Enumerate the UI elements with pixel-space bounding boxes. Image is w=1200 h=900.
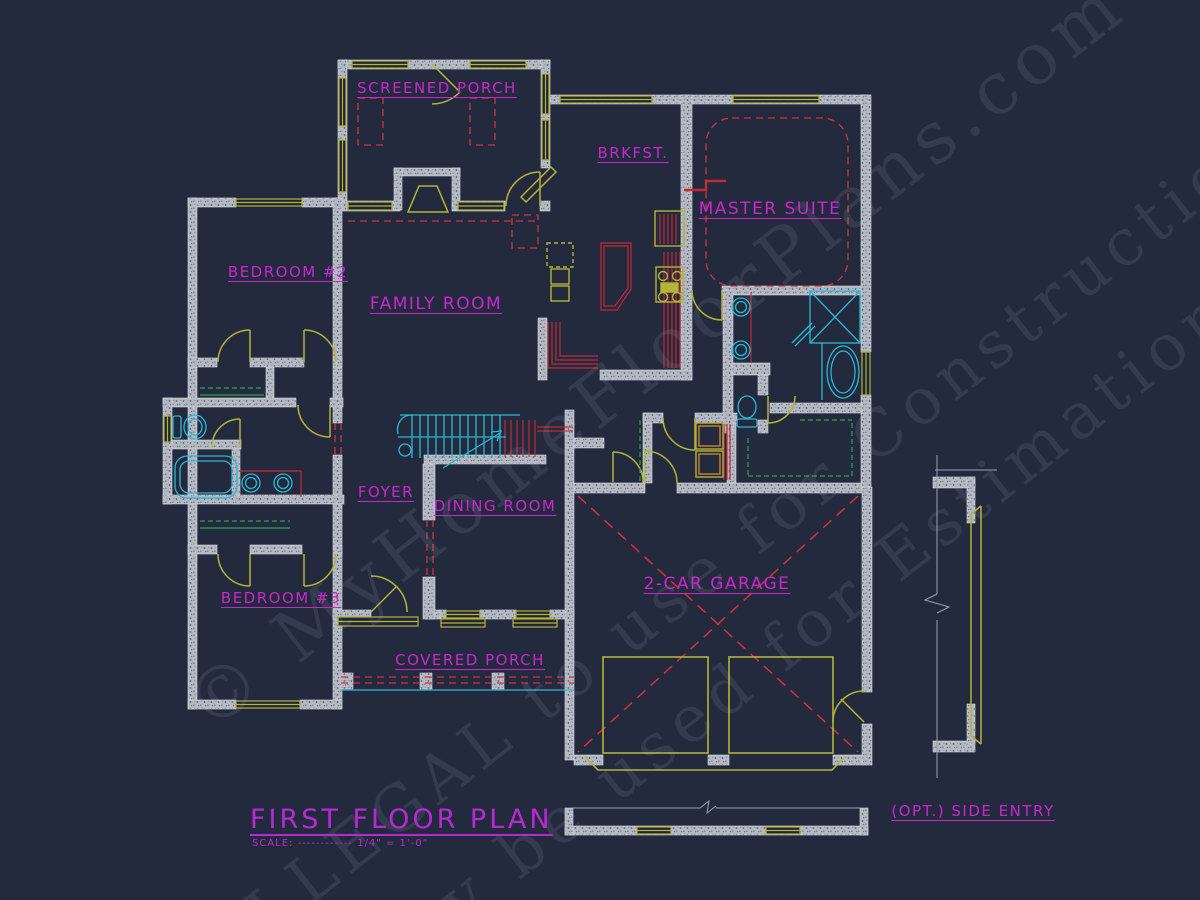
room-label-family-room: FAMILY ROOM [370,294,502,314]
porch-skylight [470,98,495,145]
range [656,267,683,302]
wall-oven [551,269,569,284]
washer-dryer [696,423,723,477]
break-line [700,801,716,813]
garage-wall-section-detail [565,801,868,835]
wall-oven [551,286,569,301]
floor-plan-stage: © MyHomeFloorPlans.com ILLEGAL to use fo… [0,0,1200,900]
porch-edge-dashed [341,677,574,683]
dining-cased-opening [427,520,433,577]
scale-note: SCALE: ------------ 1/4" = 1'-0" [252,838,428,849]
garage-ceiling-x [578,496,858,752]
master-sink-fixture [732,298,750,359]
fireplace-firebox [408,186,448,212]
break-line [925,594,949,613]
porch-skylight [358,98,383,145]
master-tub-fixture [822,343,859,400]
kitchen-island [601,243,631,310]
room-label-brkfst: BRKFST. [597,144,668,162]
hall-sink-fixture [242,474,292,492]
room-label-bedroom-3: BEDROOM #3 [221,589,341,607]
shower-fixture [792,291,860,346]
room-label-foyer: FOYER [358,483,414,501]
pantry-cabinet [547,243,573,267]
refrigerator [655,211,684,246]
page-title: FIRST FLOOR PLAN [250,804,553,835]
stair-balusters [505,420,535,457]
side-entry-detail [925,455,997,778]
room-label-garage: 2-CAR GARAGE [644,574,791,594]
detail-label-side-entry: (OPT.) SIDE ENTRY [891,802,1054,820]
garage-doors [585,657,845,770]
room-label-bedroom-2: BEDROOM #2 [228,263,348,281]
room-label-screened-porch: SCREENED PORCH [357,79,517,97]
floor-plan-canvas [0,0,1200,900]
room-label-dining-room: DINING ROOM [434,497,557,515]
hall-tub-fixture [175,456,237,498]
kitchen-cabinets [239,181,751,497]
toilet-fixture [737,396,757,427]
hall-cased-opening [335,423,341,455]
room-label-covered-porch: COVERED PORCH [395,651,545,669]
room-label-master-suite: MASTER SUITE [699,199,842,219]
